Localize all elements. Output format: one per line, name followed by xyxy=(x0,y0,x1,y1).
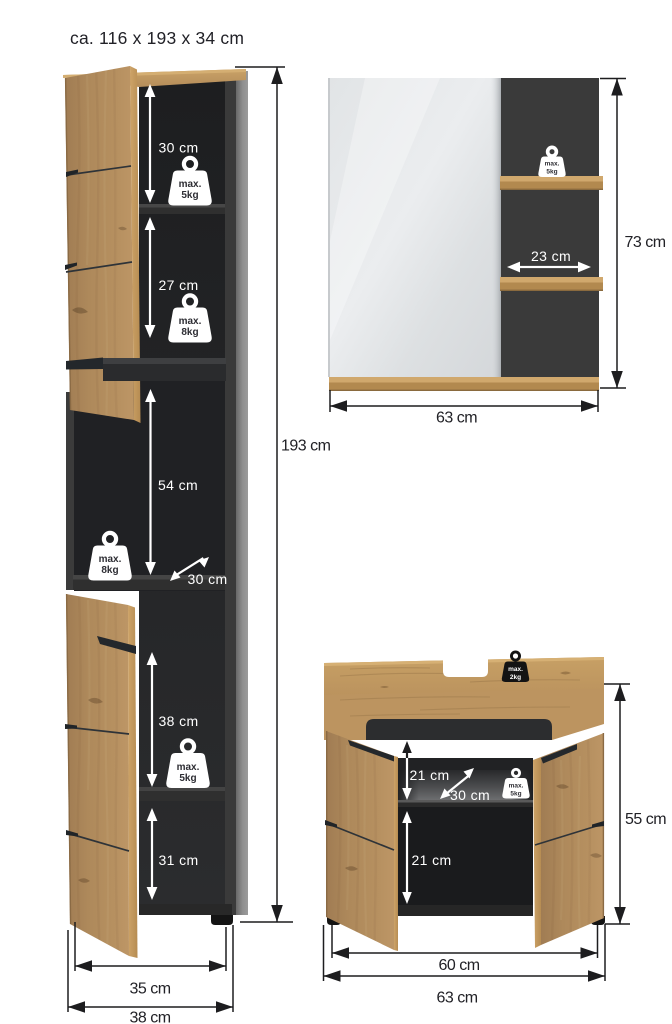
svg-text:38 cm: 38 cm xyxy=(129,1010,170,1024)
svg-text:30 cm: 30 cm xyxy=(158,140,198,156)
svg-text:63 cm: 63 cm xyxy=(436,410,477,427)
svg-text:27 cm: 27 cm xyxy=(158,277,198,293)
svg-text:30 cm: 30 cm xyxy=(450,787,490,803)
svg-text:5kg: 5kg xyxy=(546,169,557,176)
svg-text:30 cm: 30 cm xyxy=(187,571,227,587)
svg-text:38 cm: 38 cm xyxy=(158,713,198,729)
svg-text:31 cm: 31 cm xyxy=(158,852,198,868)
svg-text:ca. 116 x 193 x 34 cm: ca. 116 x 193 x 34 cm xyxy=(70,28,244,48)
svg-text:max.: max. xyxy=(508,666,523,673)
svg-text:max.: max. xyxy=(545,161,560,168)
svg-text:max.: max. xyxy=(177,762,200,773)
svg-text:54 cm: 54 cm xyxy=(158,477,198,493)
svg-text:23 cm: 23 cm xyxy=(531,248,571,264)
svg-text:8kg: 8kg xyxy=(101,565,118,576)
svg-text:max.: max. xyxy=(179,316,202,327)
svg-text:max.: max. xyxy=(509,783,524,790)
svg-text:35 cm: 35 cm xyxy=(129,981,170,998)
svg-text:193 cm: 193 cm xyxy=(281,438,331,455)
svg-text:max.: max. xyxy=(99,554,122,565)
svg-text:55 cm: 55 cm xyxy=(625,811,666,828)
svg-text:8kg: 8kg xyxy=(181,327,198,338)
svg-text:5kg: 5kg xyxy=(179,773,196,784)
svg-text:60 cm: 60 cm xyxy=(438,957,479,974)
svg-text:5kg: 5kg xyxy=(510,791,521,798)
svg-text:21 cm: 21 cm xyxy=(411,852,451,868)
svg-text:21 cm: 21 cm xyxy=(409,767,449,783)
svg-text:2kg: 2kg xyxy=(510,674,521,681)
svg-text:max.: max. xyxy=(179,179,202,190)
svg-text:5kg: 5kg xyxy=(181,190,198,201)
svg-text:63 cm: 63 cm xyxy=(436,990,477,1007)
svg-text:73 cm: 73 cm xyxy=(625,234,666,251)
